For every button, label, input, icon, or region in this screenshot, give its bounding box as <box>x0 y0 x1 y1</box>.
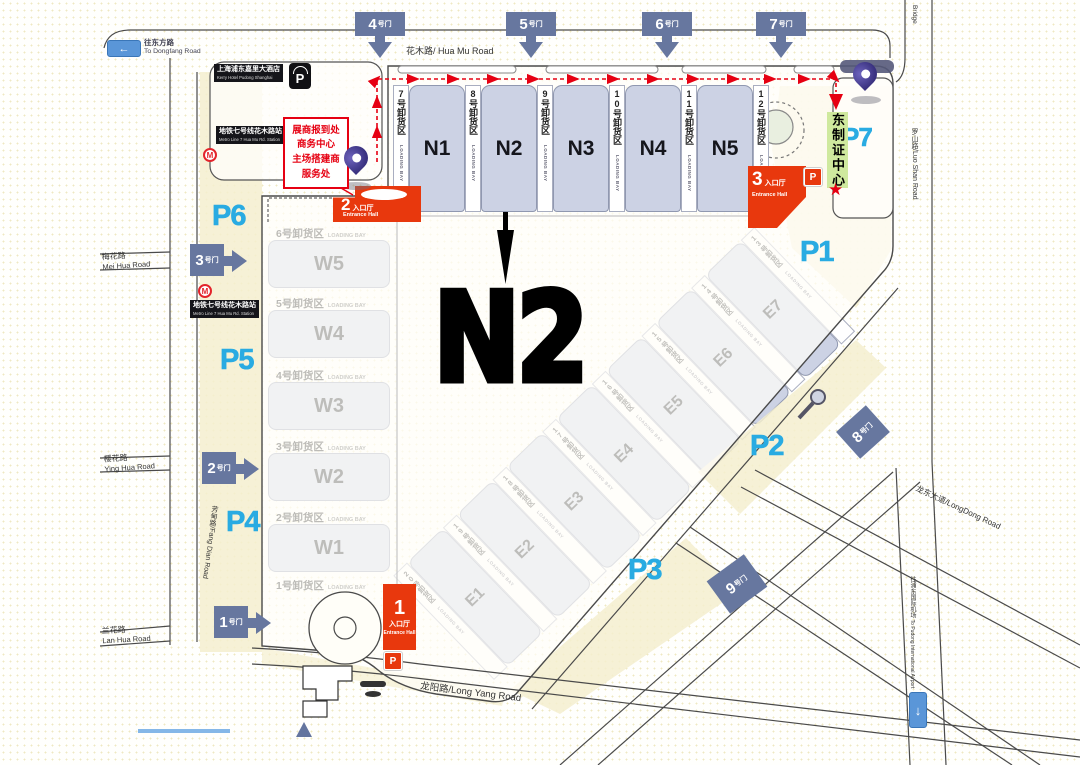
metro-logo-north: M <box>203 148 217 162</box>
entrance-1-cn: 入口厅 <box>389 619 410 629</box>
expo-site-map: 4 号门 5 号门 6 号门 7 号门 3 号门 2 号门 1 号门 8 号门 … <box>0 0 1080 765</box>
gate-2-suffix: 号门 <box>217 463 231 473</box>
entrance-1-number: 1 <box>394 598 405 618</box>
airport-en: To Pudong International Airport <box>909 620 915 689</box>
down-arrow-icon: ↓ <box>915 703 922 718</box>
airport-arrow-sign: ↓ <box>909 692 927 728</box>
gate-7-flag: 7 号门 <box>756 12 806 36</box>
p-glyph: P <box>390 656 397 667</box>
luoshan-road-label: 罗山路/Luo Shan Road <box>909 128 919 240</box>
hall-n5-label: N5 <box>712 137 739 161</box>
gate-2-flag: 2 号门 <box>202 452 236 484</box>
east-badge-center-label: 东制证中心 <box>827 112 848 188</box>
gate-3-number: 3 <box>195 252 203 269</box>
metro-station-label-north: 地铁七号线花木路站 Metro Line 7 Hua Mu Rd. Statio… <box>216 126 285 144</box>
parking-p6-label: P6 <box>212 200 245 233</box>
parking-p5-label: P5 <box>220 344 253 377</box>
lanhua-road-label: 兰花路 Lan Hua Road <box>102 623 151 646</box>
highlighted-hall-label: N2 <box>414 266 604 410</box>
dongfang-arrow-sign: ← <box>107 40 141 57</box>
star-icon: ★ <box>828 180 843 200</box>
hotel-cn: 上海浦东嘉里大酒店 <box>217 66 280 75</box>
service-line-2: 商务中心 <box>285 138 347 153</box>
gate-3-flag: 3 号门 <box>190 244 224 276</box>
culdesac-icon <box>811 390 825 404</box>
metro-en: Metro Line 7 Hua Mu Rd. Station <box>193 311 256 316</box>
parking-p2-label: P2 <box>750 430 783 463</box>
entrance-3-number: 3 <box>752 169 763 191</box>
gate-6-suffix: 号门 <box>665 19 679 29</box>
p-glyph: P <box>289 71 311 86</box>
loading-bay-8: 8号卸货区 LOADING BAY <box>465 85 481 212</box>
dongfang-road-label: 往东方路 To Dongfang Road <box>144 37 201 55</box>
hall-n3: N3 <box>553 85 609 212</box>
gate-6-flag: 6 号门 <box>642 12 692 36</box>
p-glyph: P <box>810 172 817 183</box>
parking-p1-label: P1 <box>800 236 833 269</box>
hall-n4-label: N4 <box>640 137 667 161</box>
metro-cn: 地铁七号线花木路站 <box>193 302 256 311</box>
loading-bay-10: 10号卸货区 LOADING BAY <box>609 85 625 212</box>
yinghua-road-label: 樱花路 Ying Hua Road <box>103 450 155 473</box>
bridge-label: Bridge <box>911 5 918 47</box>
buildings <box>303 666 352 717</box>
parking-p3-label: P3 <box>628 554 661 587</box>
parking-icon-hotel: P <box>289 63 311 89</box>
loading-bay-9: 9号卸货区 LOADING BAY <box>537 85 553 212</box>
parking-icon-entrance3: P <box>804 168 822 186</box>
metro-glyph: M <box>202 287 209 296</box>
hall-n5: N5 <box>697 85 753 212</box>
hotel-en: Kerry Hotel Pudong Shanghai <box>217 75 280 80</box>
loading-bay-9-label: 9号卸货区 <box>540 89 550 135</box>
entrance-3-en: Entrance Hall <box>752 192 802 198</box>
exhibitor-service-box: 展商报到处 商务中心 主场搭建商 服务处 <box>283 117 349 189</box>
metro-line-mark <box>138 729 230 733</box>
gate-1-flag: 1 号门 <box>214 606 248 638</box>
meihua-road-label: 梅花路 Mei Hua Road <box>101 248 150 271</box>
hall-n3-label: N3 <box>568 137 595 161</box>
parking-icon-entrance1: P <box>384 652 402 670</box>
loading-bay-12-label: 12号卸货区 <box>756 89 766 145</box>
loading-bay-en: LOADING BAY <box>471 145 476 182</box>
north-halls-row: 7号卸货区 LOADING BAY N1 8号卸货区 LOADING BAY N… <box>393 85 769 212</box>
left-arrow-icon: ← <box>119 43 130 55</box>
loading-bay-en: LOADING BAY <box>399 145 404 182</box>
bus-stop-strip <box>360 681 386 687</box>
service-line-3: 主场搭建商 <box>285 153 347 168</box>
pin-shadow-p7 <box>851 96 881 104</box>
loading-bay-11: 11号卸货区 LOADING BAY <box>681 85 697 212</box>
gate-4-suffix: 号门 <box>378 19 392 29</box>
entrance-2-en: Entrance Hall <box>343 212 378 218</box>
gate-4-number: 4 <box>368 16 376 33</box>
gate-6-number: 6 <box>655 16 663 33</box>
loading-bay-10-label: 10号卸货区 <box>612 89 622 145</box>
loading-bay-en: LOADING BAY <box>543 145 548 182</box>
airport-cn: 往浦东国际机场 <box>909 576 915 618</box>
hall-n4: N4 <box>625 85 681 212</box>
loading-bay-7-label: 7号卸货区 <box>396 89 406 135</box>
service-line-1: 展商报到处 <box>285 124 347 139</box>
roundabout-inner <box>334 617 356 639</box>
gate-1-suffix: 号门 <box>229 617 243 627</box>
dongfang-en: To Dongfang Road <box>144 48 201 55</box>
map-ellipse-mark <box>365 691 381 697</box>
gate-2-number: 2 <box>207 460 215 477</box>
gate-5-flag: 5 号门 <box>506 12 556 36</box>
huamu-road-label: 花木路/ Hua Mu Road <box>406 44 494 57</box>
gate-7-suffix: 号门 <box>779 19 793 29</box>
gate-7-number: 7 <box>769 16 777 33</box>
hall-n2: N2 <box>481 85 537 212</box>
gate-4-flag: 4 号门 <box>355 12 405 36</box>
metro-glyph: M <box>207 151 214 160</box>
hotel-label: 上海浦东嘉里大酒店 Kerry Hotel Pudong Shanghai <box>214 64 283 82</box>
dongfang-cn: 往东方路 <box>144 37 201 48</box>
gate-5-suffix: 号门 <box>529 19 543 29</box>
gate-3-suffix: 号门 <box>205 255 219 265</box>
gate-1-number: 1 <box>219 614 227 631</box>
entrance-hall-1: 1 入口厅 Entrance Hall <box>383 584 416 650</box>
metro-cn: 地铁七号线花木路站 <box>219 128 282 137</box>
loading-bay-11-label: 11号卸货区 <box>684 89 694 145</box>
parking-p4-label: P4 <box>226 506 259 539</box>
entrance-1-en: Entrance Hall <box>384 630 416 636</box>
entrance-3-cn: 入口厅 <box>765 178 786 188</box>
hall-n2-label: N2 <box>496 137 523 161</box>
loading-bay-en: LOADING BAY <box>687 155 692 192</box>
service-line-4: 服务处 <box>285 168 347 183</box>
triangle-mark <box>296 722 312 737</box>
gate-5-number: 5 <box>519 16 527 33</box>
metro-logo-west: M <box>198 284 212 298</box>
hall-n1-label: N1 <box>424 137 451 161</box>
loading-bay-8-label: 8号卸货区 <box>468 89 478 135</box>
loading-bay-en: LOADING BAY <box>615 155 620 192</box>
metro-en: Metro Line 7 Hua Mu Rd. Station <box>219 137 282 142</box>
metro-station-label-west: 地铁七号线花木路站 Metro Line 7 Hua Mu Rd. Statio… <box>190 300 259 318</box>
